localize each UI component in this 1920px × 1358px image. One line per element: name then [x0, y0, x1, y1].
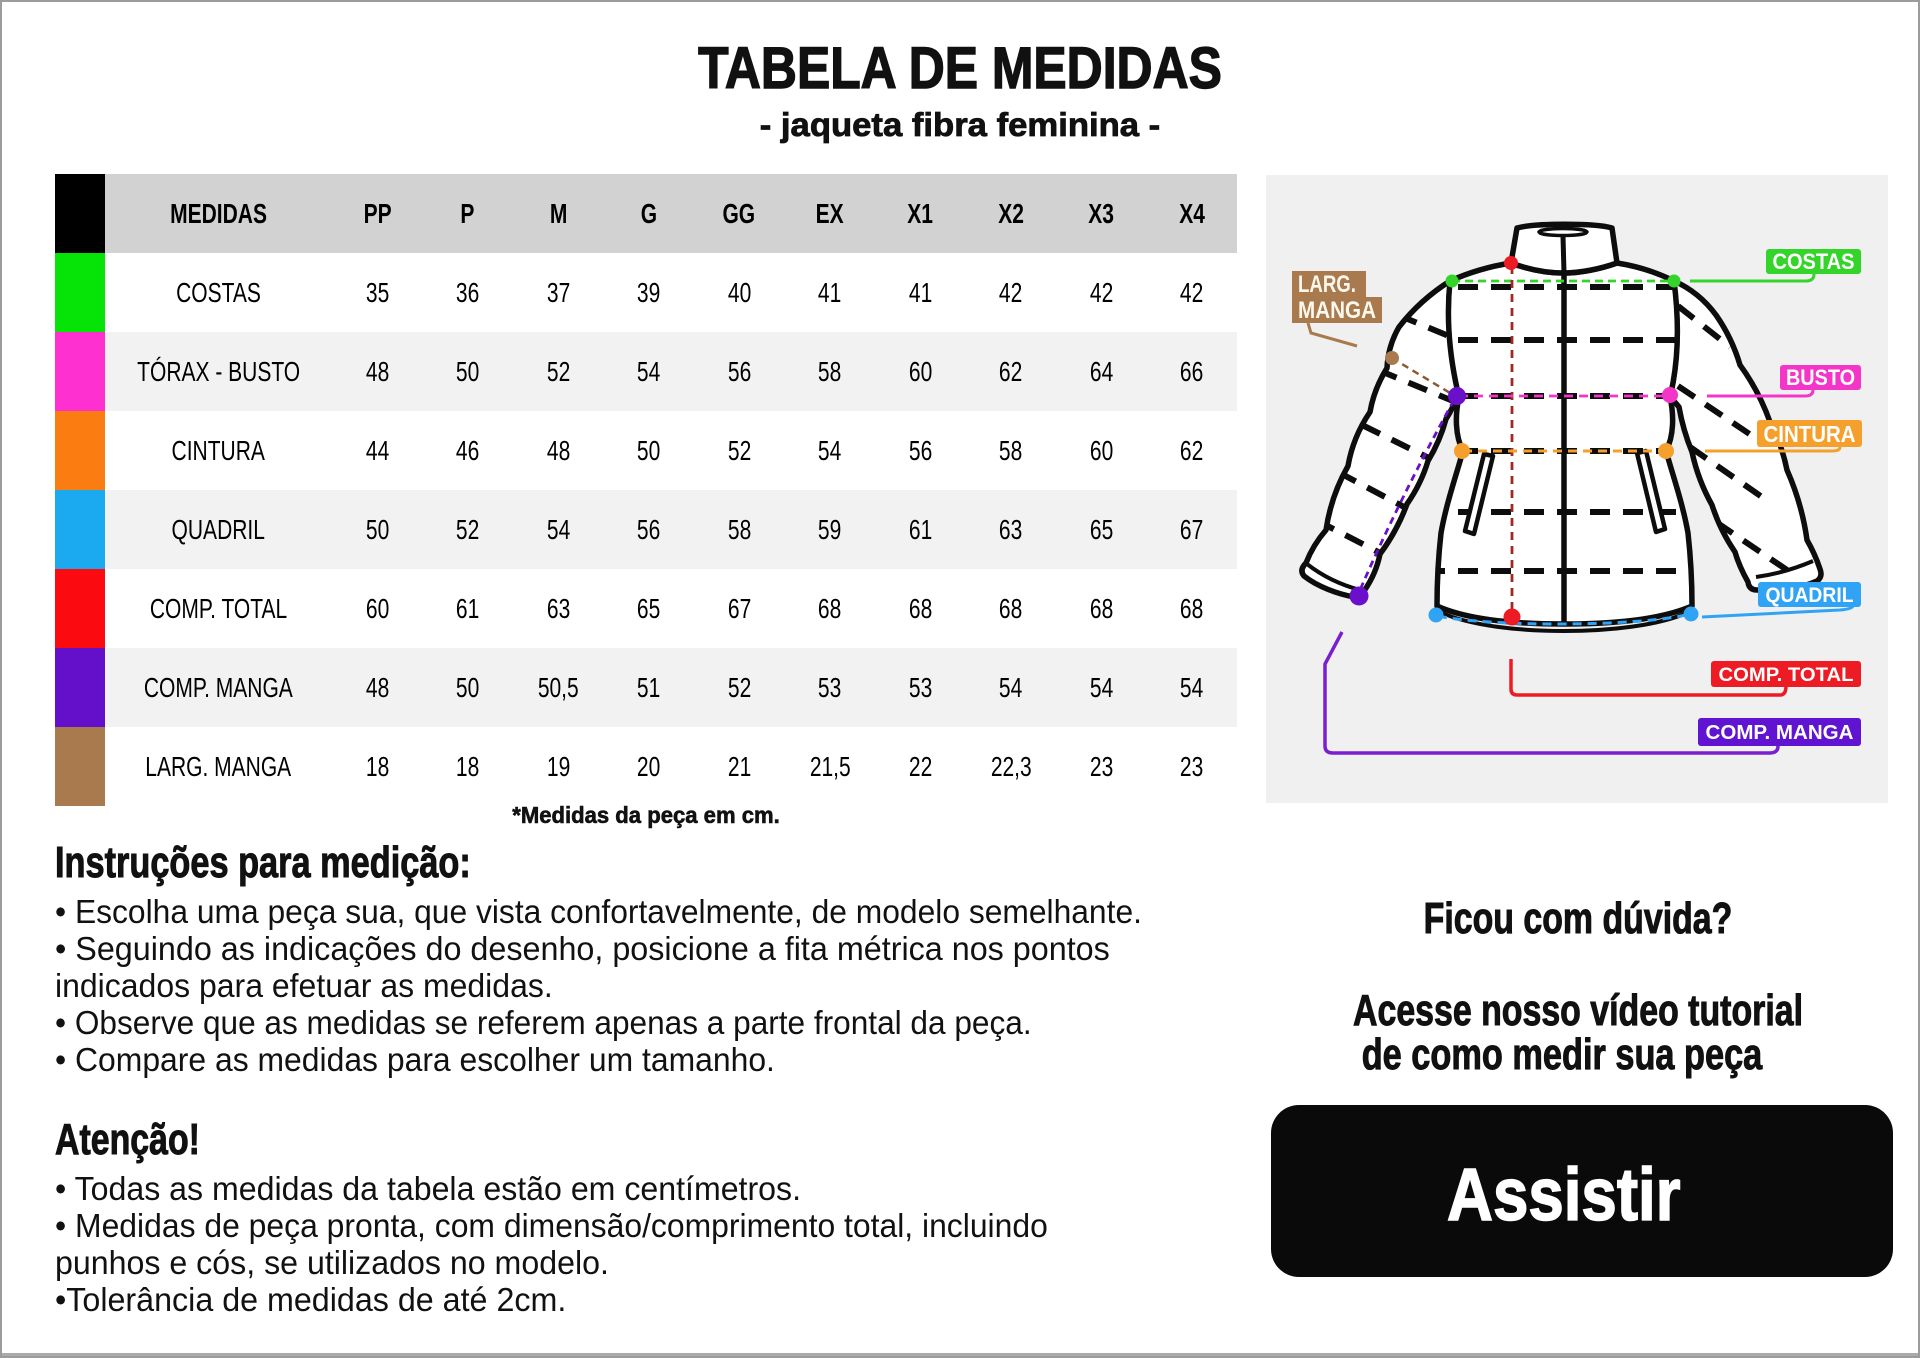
svg-text:QUADRIL: QUADRIL	[1766, 584, 1854, 607]
svg-text:MANGA: MANGA	[1298, 297, 1376, 324]
svg-text:COMP. TOTAL: COMP. TOTAL	[1719, 665, 1854, 686]
svg-text:LARG.: LARG.	[1298, 271, 1356, 298]
svg-text:CINTURA: CINTURA	[1764, 421, 1856, 447]
svg-text:BUSTO: BUSTO	[1786, 365, 1855, 390]
svg-text:COMP. MANGA: COMP. MANGA	[1706, 722, 1854, 744]
svg-text:COSTAS: COSTAS	[1773, 249, 1855, 274]
